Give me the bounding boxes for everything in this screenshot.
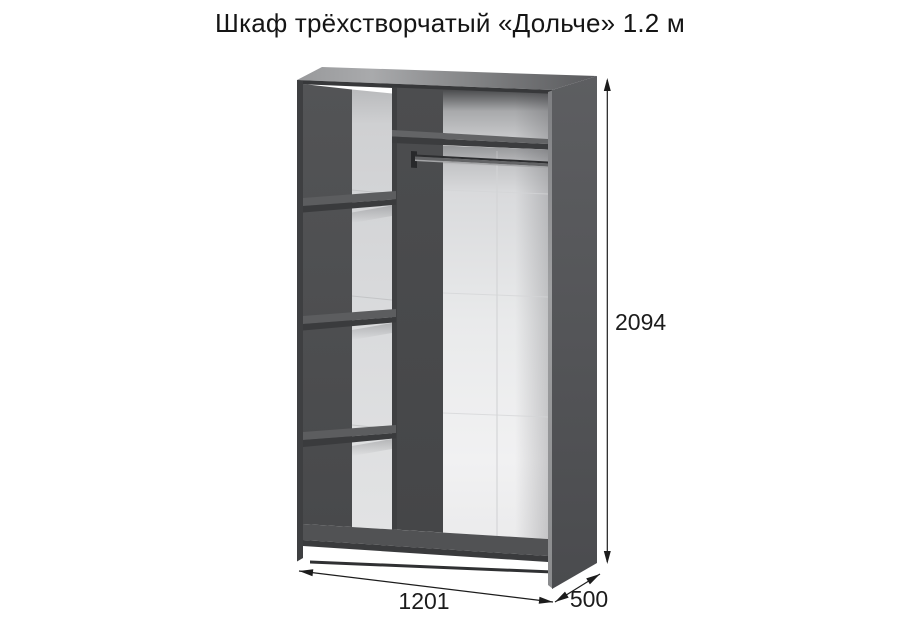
dimension-height (604, 78, 611, 564)
arrowhead-depth-back (586, 574, 600, 584)
arrowhead-up (604, 78, 611, 91)
back-panel-left (352, 90, 392, 530)
divider-panel (392, 88, 443, 533)
arrowhead-left (299, 569, 313, 576)
arrowhead-depth-front (555, 592, 569, 602)
arrowhead-down (604, 551, 611, 564)
wardrobe-diagram: 2094 1201 500 (0, 0, 900, 643)
height-dimension-label: 2094 (615, 309, 666, 335)
right-corner-shadow (515, 148, 548, 539)
arrowhead-right (539, 597, 553, 604)
wardrobe (297, 67, 597, 589)
left-side-panel-front-edge (297, 80, 303, 562)
left-side-panel-inner-face (303, 84, 352, 527)
depth-dimension-label: 500 (570, 586, 608, 612)
upper-right-corner-shadow (515, 92, 548, 140)
diagram-page: Шкаф трёхстворчатый «Дольче» 1.2 м (0, 0, 900, 643)
divider-panel-front-edge (392, 88, 397, 530)
right-side-panel-outer-face (552, 76, 597, 589)
width-dimension-label: 1201 (398, 588, 449, 614)
bottom-rail (310, 561, 553, 574)
